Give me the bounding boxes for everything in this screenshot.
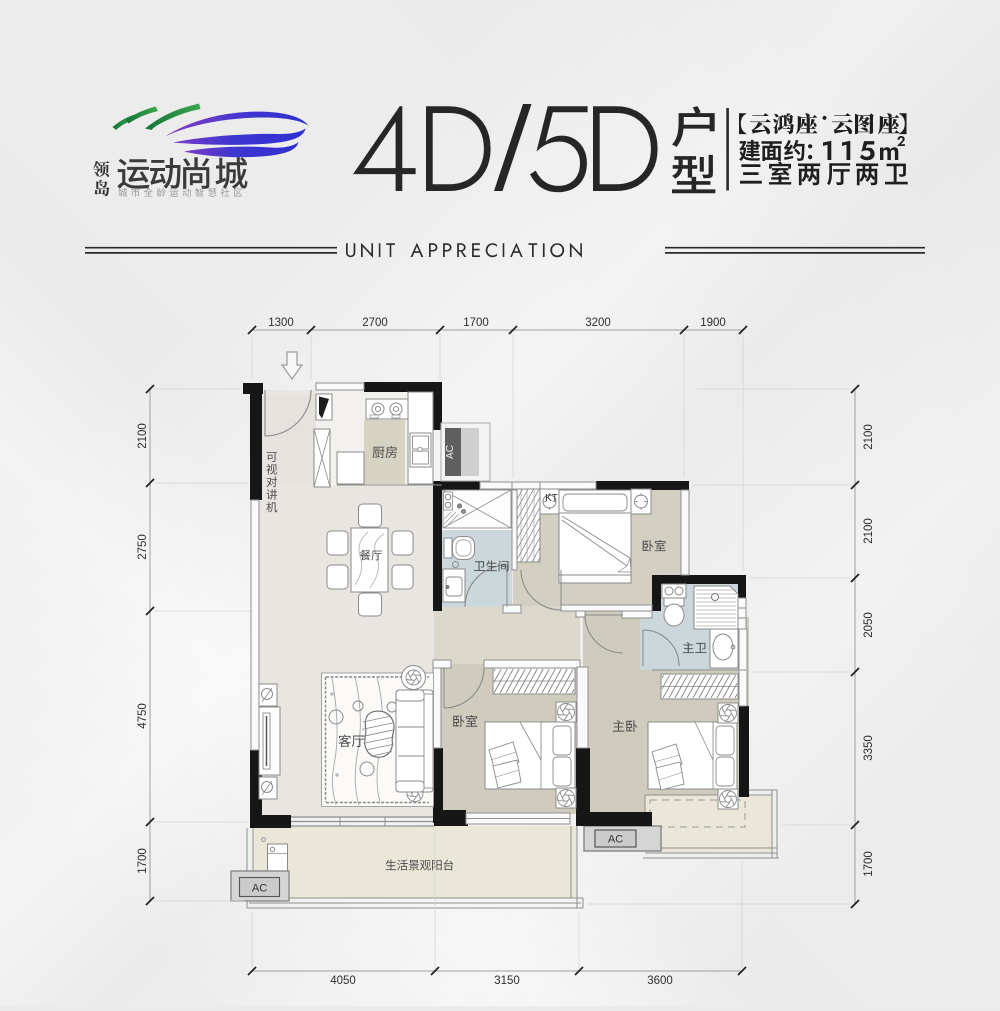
svg-text:2100: 2100 (863, 518, 875, 544)
svg-text:AC: AC (445, 445, 456, 459)
svg-text:1700: 1700 (863, 851, 875, 877)
svg-text:4050: 4050 (330, 975, 356, 987)
svg-text:1300: 1300 (268, 317, 294, 329)
svg-text:3350: 3350 (863, 735, 875, 761)
svg-text:3150: 3150 (494, 975, 520, 987)
svg-text:3200: 3200 (585, 317, 611, 329)
svg-text:1700: 1700 (137, 848, 149, 874)
svg-text:4750: 4750 (137, 703, 149, 729)
svg-text:2100: 2100 (863, 424, 875, 450)
svg-text:1700: 1700 (463, 317, 489, 329)
svg-text:1900: 1900 (700, 317, 726, 329)
svg-text:KT: KT (545, 493, 558, 504)
svg-text:3600: 3600 (647, 975, 673, 987)
svg-text:2700: 2700 (362, 317, 388, 329)
svg-text:AC: AC (608, 834, 623, 846)
svg-text:2100: 2100 (137, 423, 149, 449)
svg-text:2750: 2750 (137, 534, 149, 560)
svg-text:2050: 2050 (863, 612, 875, 638)
svg-text:AC: AC (252, 883, 267, 895)
